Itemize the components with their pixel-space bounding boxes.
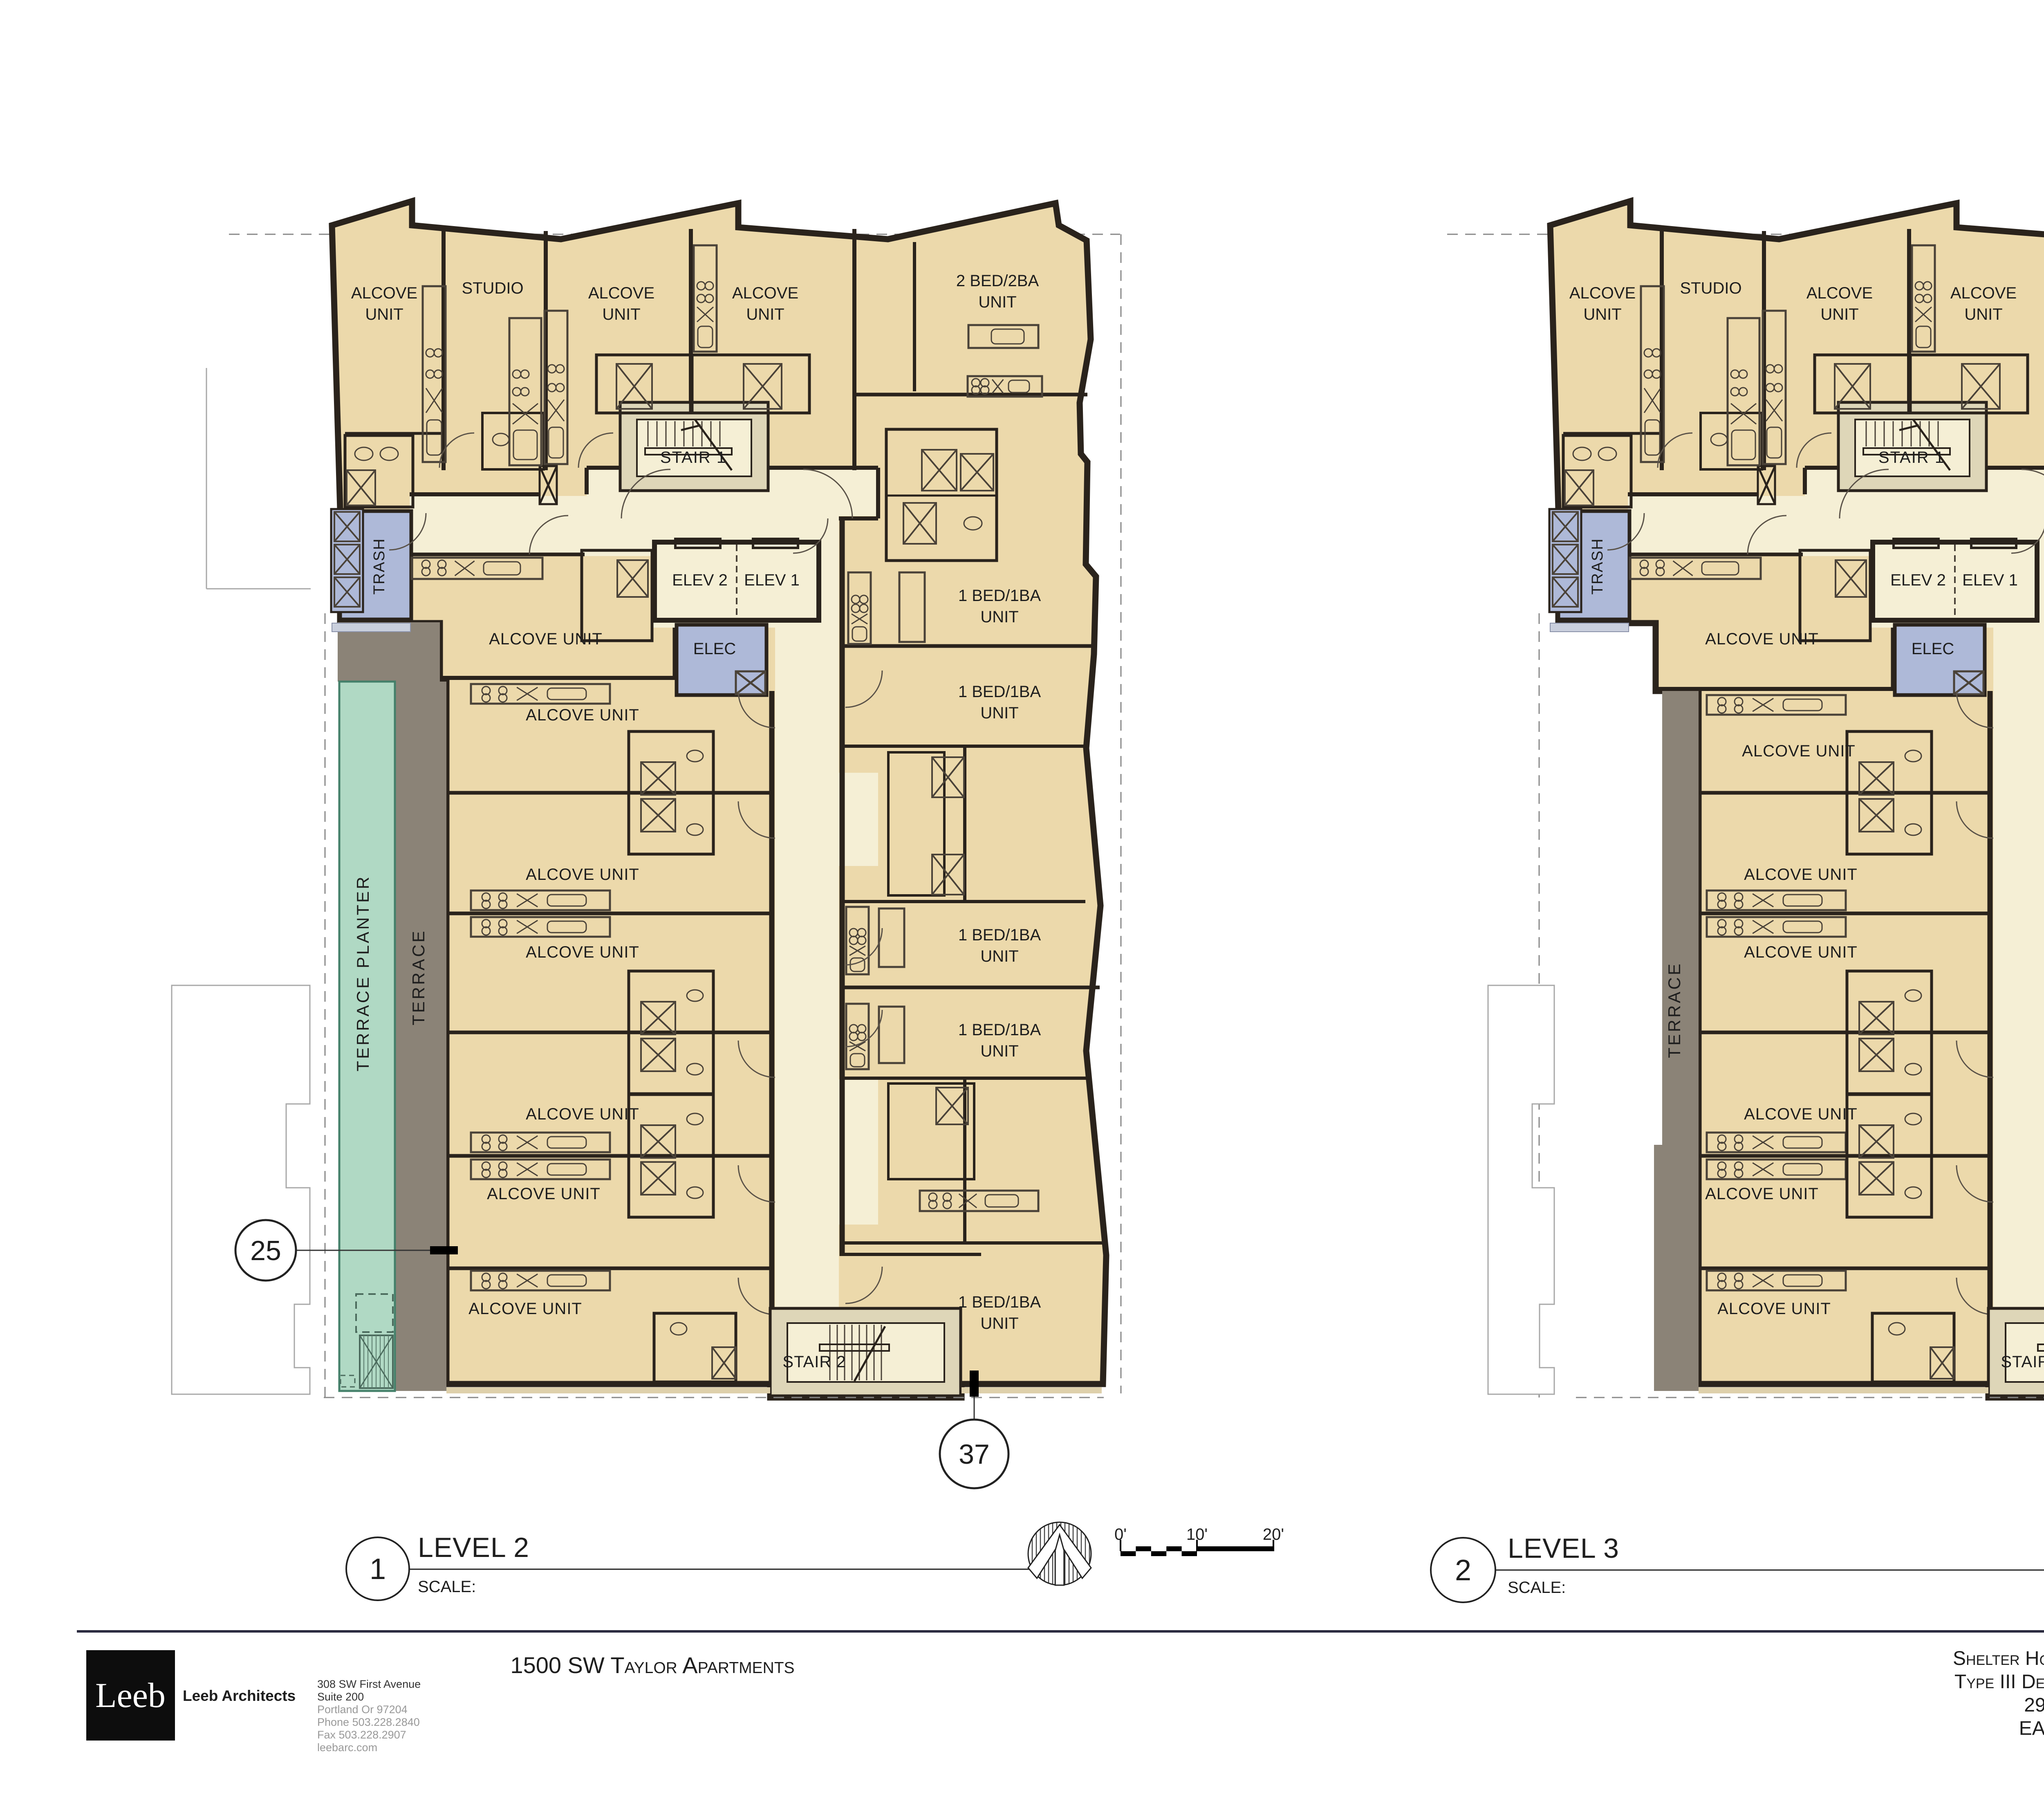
svg-text:ALCOVE UNIT: ALCOVE UNIT	[526, 943, 639, 961]
svg-text:25: 25	[250, 1235, 281, 1266]
svg-text:Leeb Architects: Leeb Architects	[183, 1687, 296, 1704]
svg-text:SCALE:: SCALE:	[418, 1578, 476, 1596]
svg-text:29 April 2019: 29 April 2019	[2024, 1694, 2044, 1716]
svg-text:Portland Or 97204: Portland Or 97204	[317, 1703, 408, 1716]
svg-text:10': 10'	[1186, 1525, 1208, 1543]
svg-text:UNIT: UNIT	[746, 305, 784, 323]
svg-text:UNIT: UNIT	[365, 305, 403, 323]
svg-text:SCALE:: SCALE:	[1508, 1579, 1566, 1597]
svg-text:308 SW First Avenue: 308 SW First Avenue	[317, 1678, 421, 1690]
svg-text:UNIT: UNIT	[1820, 305, 1858, 323]
svg-text:UNIT: UNIT	[602, 305, 640, 323]
svg-text:ALCOVE UNIT: ALCOVE UNIT	[526, 866, 639, 884]
svg-text:ALCOVE UNIT: ALCOVE UNIT	[489, 630, 603, 648]
svg-text:ALCOVE: ALCOVE	[1569, 284, 1636, 302]
svg-text:ALCOVE UNIT: ALCOVE UNIT	[526, 706, 639, 724]
svg-text:ALCOVE: ALCOVE	[588, 284, 654, 302]
svg-text:ALCOVE UNIT: ALCOVE UNIT	[1705, 630, 1819, 648]
svg-text:1 BED/1BA: 1 BED/1BA	[958, 683, 1041, 701]
svg-text:ALCOVE UNIT: ALCOVE UNIT	[1717, 1300, 1831, 1318]
svg-text:20': 20'	[1263, 1525, 1284, 1543]
svg-text:1 BED/1BA: 1 BED/1BA	[958, 1293, 1041, 1311]
svg-text:1 BED/1BA: 1 BED/1BA	[958, 587, 1041, 605]
svg-text:UNIT: UNIT	[980, 608, 1018, 626]
svg-text:EA 18-242546: EA 18-242546	[2019, 1718, 2044, 1739]
svg-text:TERRACE: TERRACE	[409, 929, 428, 1025]
svg-text:ELEV 1: ELEV 1	[1962, 571, 2018, 589]
svg-text:UNIT: UNIT	[1583, 305, 1621, 323]
svg-text:1500 SW Taylor Apartments: 1500 SW Taylor Apartments	[510, 1652, 794, 1678]
svg-text:2 BED/2BA: 2 BED/2BA	[956, 272, 1039, 290]
svg-text:ALCOVE: ALCOVE	[1950, 284, 2017, 302]
svg-text:ALCOVE UNIT: ALCOVE UNIT	[1705, 1185, 1819, 1203]
svg-text:ALCOVE UNIT: ALCOVE UNIT	[1744, 943, 1858, 961]
svg-text:ALCOVE UNIT: ALCOVE UNIT	[1742, 742, 1856, 760]
svg-text:UNIT: UNIT	[1964, 305, 2002, 323]
svg-text:ALCOVE UNIT: ALCOVE UNIT	[468, 1300, 582, 1318]
svg-text:STUDIO: STUDIO	[462, 279, 523, 297]
svg-text:TRASH: TRASH	[371, 538, 388, 595]
svg-text:ELEC: ELEC	[1912, 640, 1954, 658]
svg-text:ALCOVE: ALCOVE	[1806, 284, 1873, 302]
svg-text:ALCOVE UNIT: ALCOVE UNIT	[1744, 866, 1858, 884]
svg-text:UNIT: UNIT	[980, 704, 1018, 722]
svg-text:STAIR 1: STAIR 1	[1878, 449, 1945, 467]
svg-text:2: 2	[1455, 1554, 1471, 1587]
svg-text:UNIT: UNIT	[980, 1314, 1018, 1332]
svg-text:STAIR 2: STAIR 2	[782, 1353, 846, 1371]
svg-text:ALCOVE: ALCOVE	[351, 284, 417, 302]
svg-text:UNIT: UNIT	[978, 293, 1016, 311]
svg-text:0': 0'	[1114, 1525, 1127, 1543]
svg-text:ELEC: ELEC	[693, 640, 736, 658]
svg-text:ALCOVE UNIT: ALCOVE UNIT	[487, 1185, 601, 1203]
svg-text:1: 1	[370, 1553, 386, 1586]
svg-text:Fax 503.228.2907: Fax 503.228.2907	[317, 1729, 406, 1741]
svg-text:TRASH: TRASH	[1589, 538, 1606, 595]
svg-text:Shelter Holdings LLC: Shelter Holdings LLC	[1953, 1648, 2044, 1669]
svg-text:ELEV 2: ELEV 2	[672, 571, 728, 589]
svg-text:TERRACE: TERRACE	[1665, 962, 1684, 1058]
svg-text:ELEV 2: ELEV 2	[1890, 571, 1946, 589]
svg-text:ALCOVE UNIT: ALCOVE UNIT	[526, 1105, 639, 1123]
svg-text:ALCOVE UNIT: ALCOVE UNIT	[1744, 1105, 1858, 1123]
svg-text:TERRACE PLANTER: TERRACE PLANTER	[353, 875, 372, 1071]
svg-text:leebarc.com: leebarc.com	[317, 1741, 377, 1754]
svg-text:ALCOVE: ALCOVE	[732, 284, 798, 302]
svg-text:1 BED/1BA: 1 BED/1BA	[958, 1021, 1041, 1039]
svg-text:Phone 503.228.2840: Phone 503.228.2840	[317, 1716, 420, 1728]
svg-text:UNIT: UNIT	[980, 1042, 1018, 1060]
svg-text:ELEV 1: ELEV 1	[744, 571, 800, 589]
svg-text:STAIR 1: STAIR 1	[660, 449, 726, 467]
svg-text:1 BED/1BA: 1 BED/1BA	[958, 926, 1041, 944]
svg-text:LEVEL 3: LEVEL 3	[1508, 1533, 1619, 1564]
svg-text:STUDIO: STUDIO	[1680, 279, 1741, 297]
svg-text:STAIR 2: STAIR 2	[2001, 1353, 2044, 1371]
svg-text:LEVEL 2: LEVEL 2	[418, 1532, 529, 1563]
svg-text:Leeb: Leeb	[95, 1676, 166, 1715]
svg-text:Suite 200: Suite 200	[317, 1691, 364, 1703]
svg-text:UNIT: UNIT	[980, 947, 1018, 965]
svg-text:37: 37	[959, 1439, 990, 1470]
svg-text:Type III Design Review: Type III Design Review	[1954, 1671, 2044, 1693]
